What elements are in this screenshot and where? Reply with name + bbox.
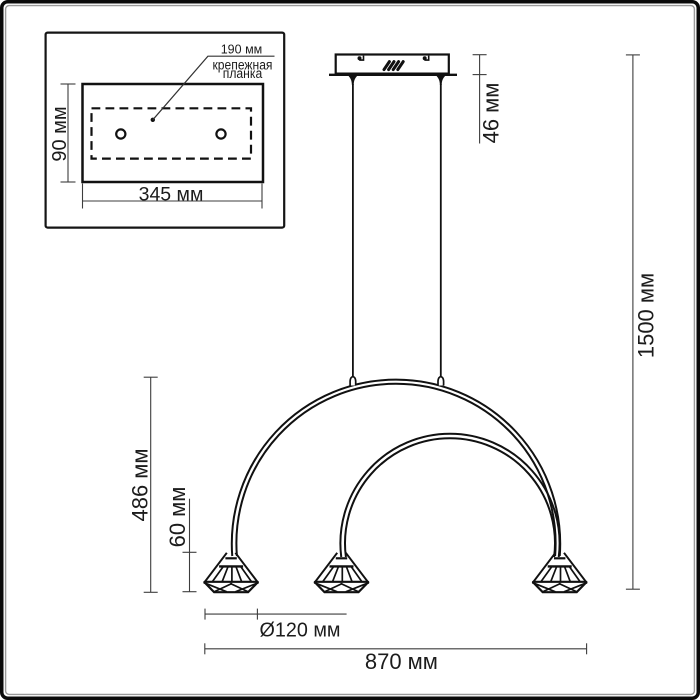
svg-text:Ø120 мм: Ø120 мм bbox=[260, 619, 341, 642]
svg-text:планка: планка bbox=[223, 66, 263, 81]
svg-text:1500 мм: 1500 мм bbox=[633, 273, 658, 358]
svg-text:486 мм: 486 мм bbox=[127, 448, 152, 521]
svg-text:870 мм: 870 мм bbox=[365, 649, 438, 674]
svg-text:345 мм: 345 мм bbox=[139, 183, 204, 205]
svg-text:90 мм: 90 мм bbox=[49, 106, 71, 161]
svg-text:60 мм: 60 мм bbox=[165, 487, 190, 548]
svg-text:46 мм: 46 мм bbox=[478, 83, 503, 144]
svg-text:190 мм: 190 мм bbox=[221, 43, 263, 57]
